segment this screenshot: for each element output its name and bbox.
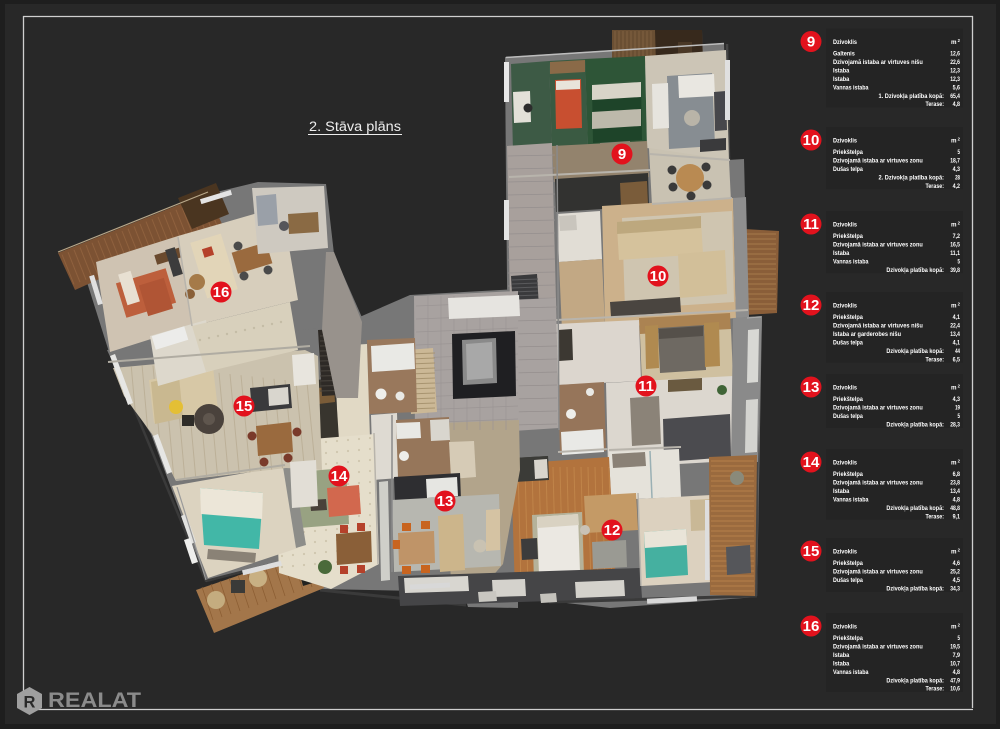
svg-text:REALAT: REALAT [48, 688, 141, 712]
svg-text:11: 11 [638, 378, 654, 395]
svg-text:16: 16 [803, 618, 820, 635]
svg-text:Dzivoklis: Dzivoklis [833, 460, 857, 467]
svg-text:2. Dzivokļa platība kopā:: 2. Dzivokļa platība kopā: [879, 174, 945, 181]
svg-text:2. Stāva plāns: 2. Stāva plāns [309, 119, 401, 134]
svg-text:6,5: 6,5 [953, 356, 961, 363]
svg-text:28,3: 28,3 [950, 421, 960, 428]
svg-text:13: 13 [803, 379, 820, 396]
svg-text:Istaba: Istaba [833, 250, 850, 257]
svg-text:34,3: 34,3 [950, 585, 960, 592]
svg-text:19: 19 [955, 404, 960, 411]
svg-text:Priekštelpa: Priekštelpa [833, 149, 863, 156]
svg-text:Dzivojamā istaba ar virtuves z: Dzivojamā istaba ar virtuves zonu [833, 241, 923, 248]
svg-text:5: 5 [958, 149, 961, 156]
svg-text:4,1: 4,1 [953, 314, 961, 321]
svg-text:18,7: 18,7 [950, 157, 960, 164]
svg-text:Terase:: Terase: [926, 356, 945, 363]
svg-text:Vannas istaba: Vannas istaba [833, 669, 869, 676]
svg-text:Istaba ar garderobes nišu: Istaba ar garderobes nišu [833, 331, 901, 338]
svg-text:Dzivoklis: Dzivoklis [833, 138, 857, 145]
svg-text:Dušas telpa: Dušas telpa [833, 413, 863, 420]
svg-text:m: m [951, 460, 957, 467]
svg-text:Dzivojamā istaba ar virtuves n: Dzivojamā istaba ar virtuves nišu [833, 322, 923, 329]
svg-text:5: 5 [958, 635, 961, 642]
svg-text:48,8: 48,8 [950, 505, 960, 512]
svg-text:4,3: 4,3 [953, 396, 961, 403]
svg-text:5,6: 5,6 [953, 84, 961, 91]
svg-text:1. Dzivokļa platība kopā:: 1. Dzivokļa platība kopā: [879, 93, 945, 100]
svg-text:7,9: 7,9 [953, 652, 961, 659]
svg-text:23,8: 23,8 [950, 479, 960, 486]
svg-text:4,8: 4,8 [953, 496, 961, 503]
svg-text:4,5: 4,5 [953, 577, 961, 584]
svg-text:39,8: 39,8 [950, 267, 960, 274]
svg-text:Dzivojamā istaba ar virtuves z: Dzivojamā istaba ar virtuves zonu [833, 479, 923, 486]
svg-text:Istaba: Istaba [833, 652, 850, 659]
svg-text:Priekštelpa: Priekštelpa [833, 233, 863, 240]
svg-text:Vannas istaba: Vannas istaba [833, 84, 869, 91]
svg-text:13: 13 [437, 493, 454, 510]
svg-text:Dzivokļa platība kopā:: Dzivokļa platība kopā: [886, 267, 944, 274]
svg-text:10: 10 [803, 132, 820, 149]
svg-text:16: 16 [213, 284, 230, 301]
svg-text:Dzivokļa platība kopā:: Dzivokļa platība kopā: [886, 505, 944, 512]
svg-text:22,6: 22,6 [950, 59, 960, 66]
svg-text:11: 11 [803, 216, 819, 233]
svg-text:Istaba: Istaba [833, 76, 850, 83]
svg-text:Terase:: Terase: [926, 513, 945, 520]
svg-text:Vannas istaba: Vannas istaba [833, 258, 869, 265]
svg-text:Priekštelpa: Priekštelpa [833, 635, 863, 642]
svg-text:7,2: 7,2 [953, 233, 961, 240]
svg-text:Dzivokļa platība kopā:: Dzivokļa platība kopā: [886, 677, 944, 684]
svg-text:5: 5 [958, 258, 961, 265]
svg-text:Dzivoklis: Dzivoklis [833, 624, 857, 631]
svg-text:Dzivoklis: Dzivoklis [833, 222, 857, 229]
svg-text:15: 15 [803, 543, 820, 560]
svg-text:Dzivojamā istaba ar virtuves z: Dzivojamā istaba ar virtuves zonu [833, 404, 923, 411]
svg-text:12: 12 [604, 522, 621, 539]
svg-text:10,7: 10,7 [950, 660, 960, 667]
svg-text:Dzivojamā istaba ar virtuves n: Dzivojamā istaba ar virtuves nišu [833, 59, 923, 66]
svg-text:Terase:: Terase: [926, 101, 945, 108]
svg-text:19,5: 19,5 [950, 643, 960, 650]
svg-text:Dušas telpa: Dušas telpa [833, 166, 863, 173]
svg-text:12: 12 [803, 297, 820, 314]
svg-text:Dzivokļa platība kopā:: Dzivokļa platība kopā: [886, 421, 944, 428]
svg-text:4,8: 4,8 [953, 101, 961, 108]
svg-text:R: R [24, 694, 36, 712]
svg-text:m: m [951, 549, 957, 556]
svg-text:Terase:: Terase: [926, 183, 945, 190]
svg-text:Priekštelpa: Priekštelpa [833, 396, 863, 403]
svg-text:m: m [951, 303, 957, 310]
svg-text:Dzivoklis: Dzivoklis [833, 303, 857, 310]
svg-text:13,4: 13,4 [950, 331, 960, 338]
svg-text:15: 15 [236, 398, 253, 415]
svg-text:Dzivoklis: Dzivoklis [833, 39, 857, 46]
svg-text:Galtenis: Galtenis [833, 51, 855, 58]
svg-text:12,3: 12,3 [950, 67, 960, 74]
svg-text:10,6: 10,6 [950, 686, 960, 693]
svg-text:m: m [951, 624, 957, 631]
svg-text:Istaba: Istaba [833, 488, 850, 495]
svg-text:Priekštelpa: Priekštelpa [833, 314, 863, 321]
svg-text:6,8: 6,8 [953, 471, 961, 478]
svg-text:Priekštelpa: Priekštelpa [833, 560, 863, 567]
svg-text:9: 9 [618, 146, 626, 163]
svg-text:4,1: 4,1 [953, 339, 961, 346]
svg-text:12,3: 12,3 [950, 76, 960, 83]
svg-text:65,4: 65,4 [950, 93, 960, 100]
svg-text:Dzivojamā istaba ar virtuves z: Dzivojamā istaba ar virtuves zonu [833, 568, 923, 575]
svg-text:25,2: 25,2 [950, 568, 960, 575]
svg-text:Dzivokļa platība kopā:: Dzivokļa platība kopā: [886, 348, 944, 355]
svg-text:14: 14 [331, 468, 348, 485]
svg-text:28: 28 [955, 174, 960, 181]
svg-text:Istaba: Istaba [833, 67, 850, 74]
svg-text:Vannas istaba: Vannas istaba [833, 496, 869, 503]
svg-text:9: 9 [807, 34, 815, 51]
svg-text:m: m [951, 222, 957, 229]
svg-text:13,4: 13,4 [950, 488, 960, 495]
svg-text:47,9: 47,9 [950, 677, 960, 684]
svg-text:11,1: 11,1 [950, 250, 960, 257]
svg-text:Dzivoklis: Dzivoklis [833, 385, 857, 392]
svg-text:Dzivokļa platība kopā:: Dzivokļa platība kopā: [886, 585, 944, 592]
svg-text:4,2: 4,2 [953, 183, 961, 190]
svg-text:Dušas telpa: Dušas telpa [833, 339, 863, 346]
svg-text:Priekštelpa: Priekštelpa [833, 471, 863, 478]
svg-text:Dzivojamā istaba ar virtuves z: Dzivojamā istaba ar virtuves zonu [833, 157, 923, 164]
svg-text:m: m [951, 39, 957, 46]
svg-text:10: 10 [650, 268, 667, 285]
svg-text:5: 5 [958, 413, 961, 420]
svg-text:14: 14 [803, 454, 820, 471]
svg-text:9,1: 9,1 [953, 513, 961, 520]
svg-text:Dušas telpa: Dušas telpa [833, 577, 863, 584]
svg-text:Istaba: Istaba [833, 660, 850, 667]
svg-text:m: m [951, 385, 957, 392]
svg-text:44: 44 [955, 348, 960, 355]
svg-text:Terase:: Terase: [926, 686, 945, 693]
svg-text:4,3: 4,3 [953, 166, 961, 173]
svg-text:12,6: 12,6 [950, 51, 960, 58]
svg-text:16,5: 16,5 [950, 241, 960, 248]
svg-text:22,4: 22,4 [950, 322, 960, 329]
svg-text:Dzivojamā istaba ar virtuves z: Dzivojamā istaba ar virtuves zonu [833, 643, 923, 650]
svg-text:4,8: 4,8 [953, 669, 961, 676]
svg-text:m: m [951, 138, 957, 145]
svg-text:4,6: 4,6 [953, 560, 961, 567]
svg-text:Dzivoklis: Dzivoklis [833, 549, 857, 556]
